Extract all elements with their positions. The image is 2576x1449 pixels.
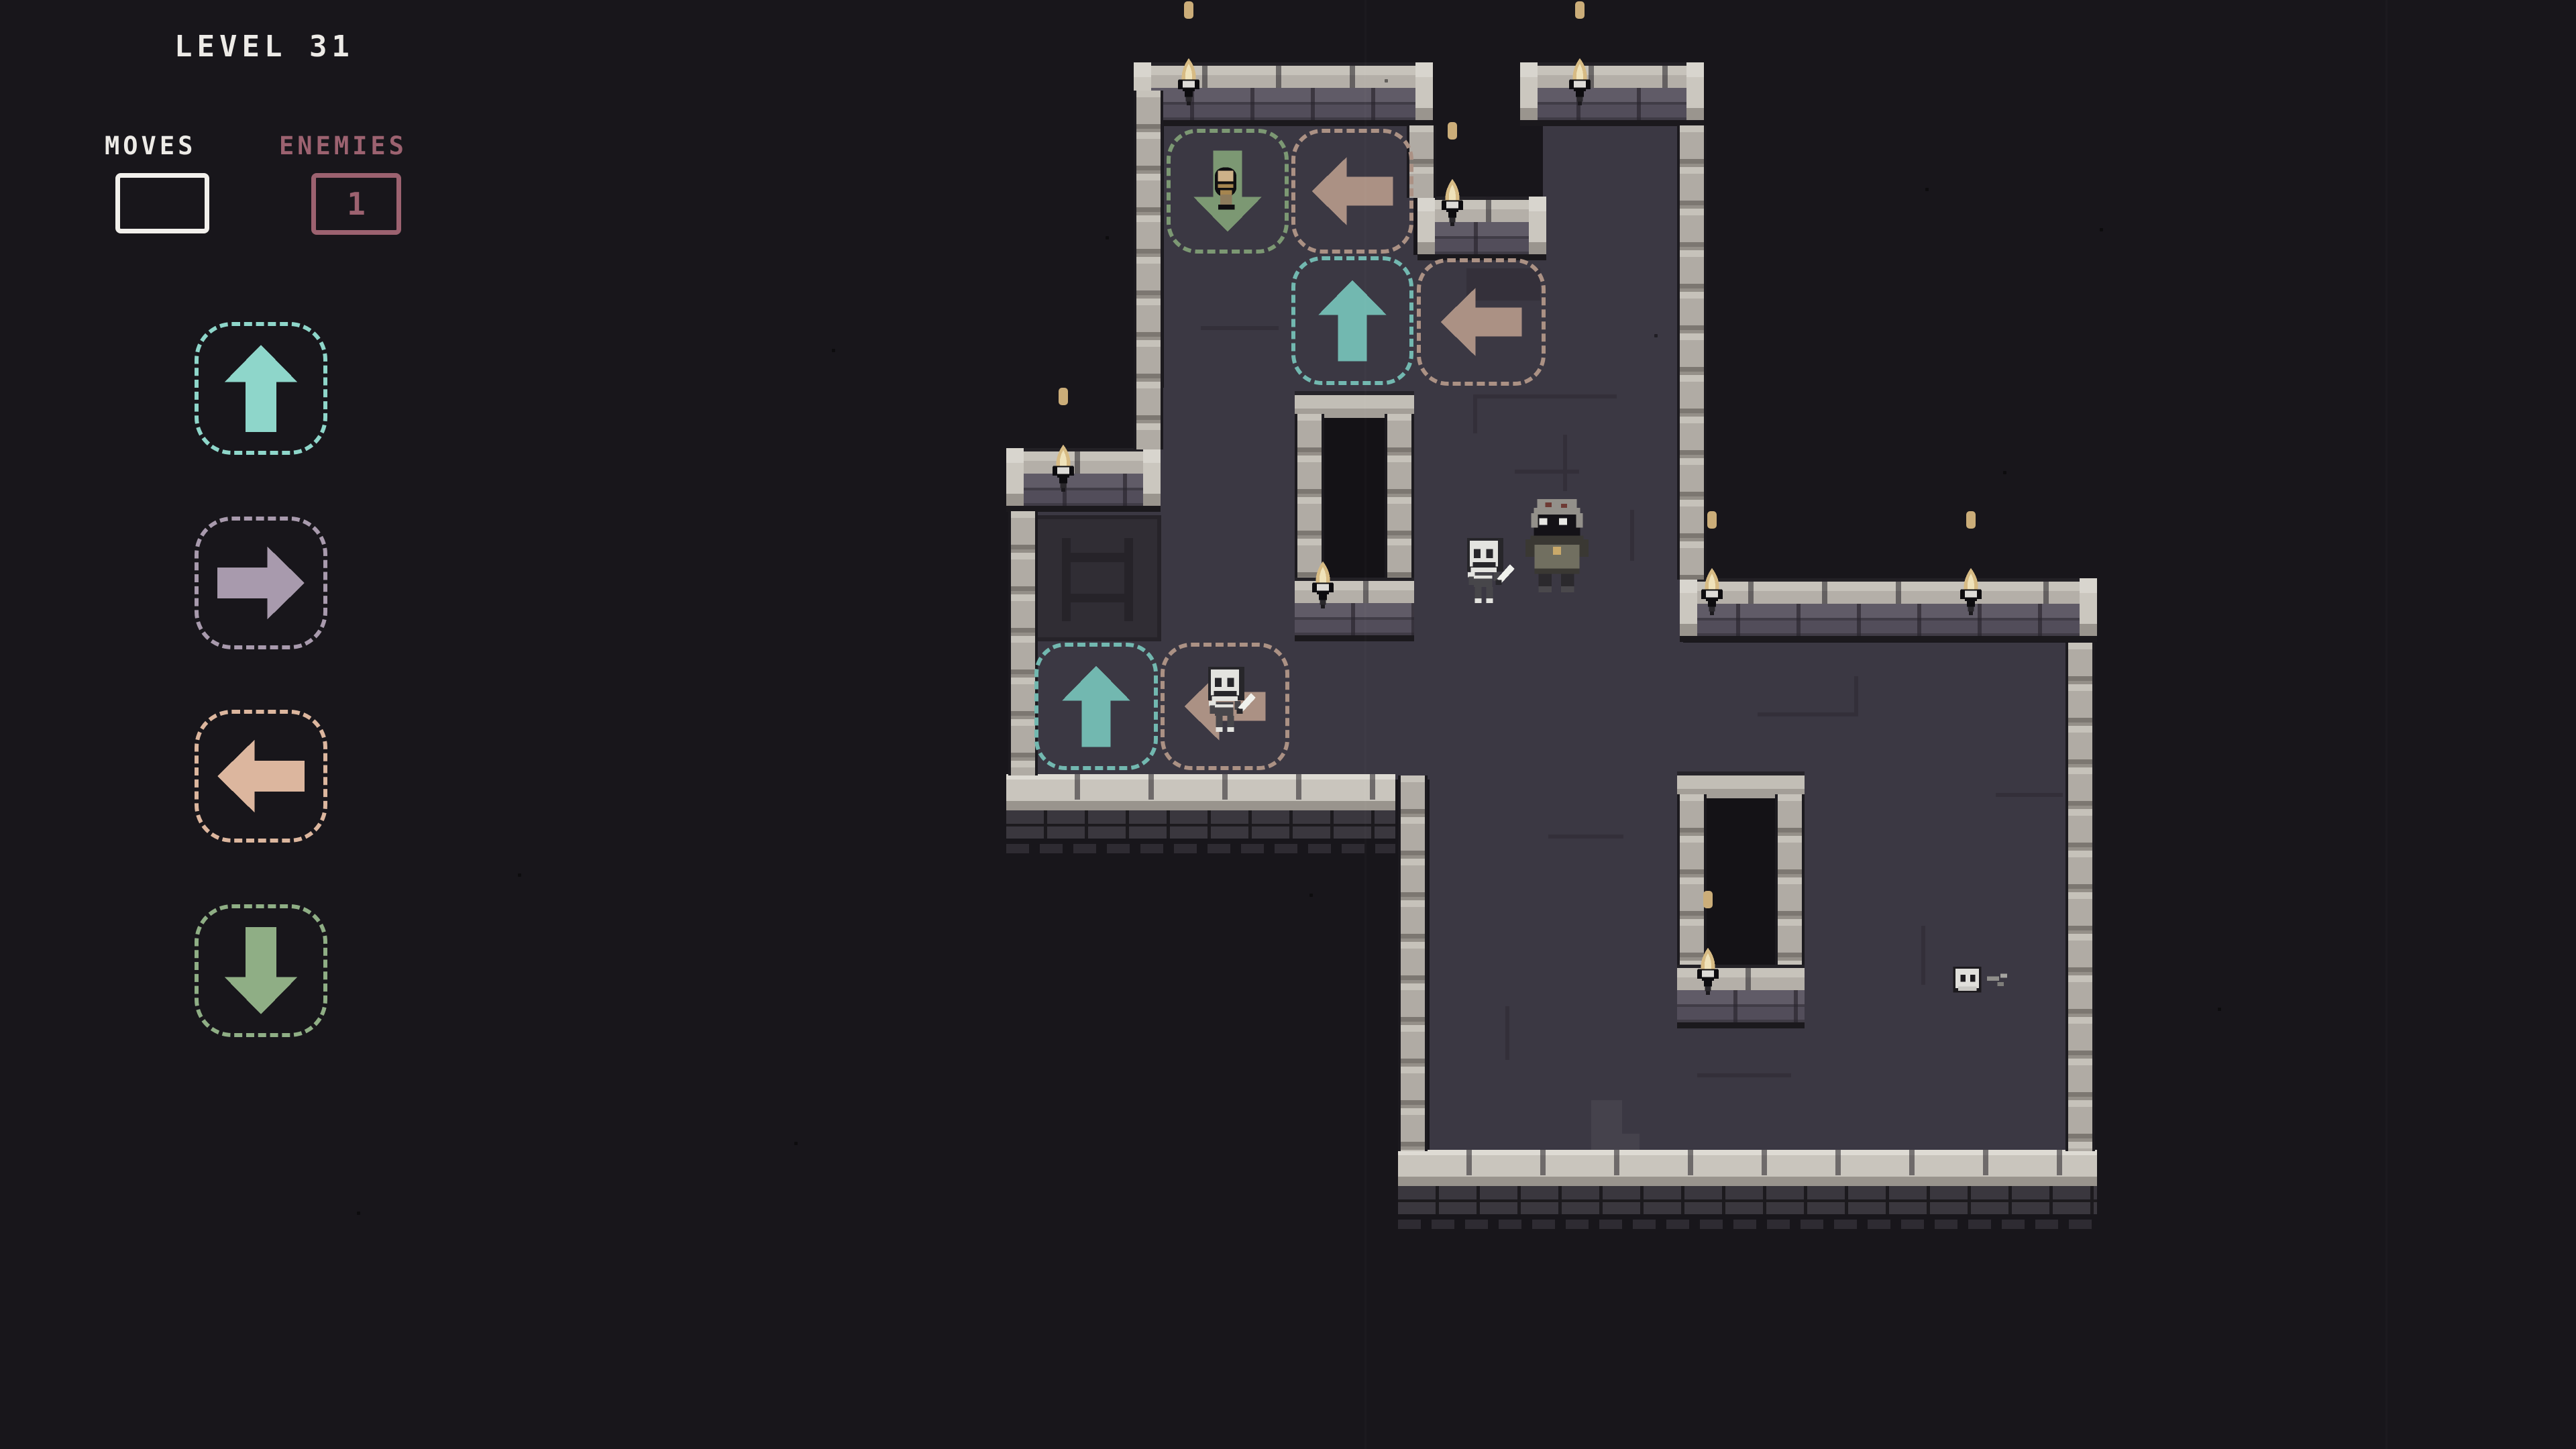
floor-speck bbox=[2100, 228, 2103, 231]
floor-crack bbox=[1630, 510, 1634, 561]
floor-crack bbox=[1515, 470, 1579, 474]
floor-speck bbox=[832, 349, 835, 352]
torch-ember bbox=[1059, 388, 1068, 405]
floor-crack bbox=[1996, 793, 2063, 797]
floor-speck bbox=[2218, 1008, 2221, 1011]
floor-crack bbox=[1563, 435, 1567, 491]
game-screen: LEVEL 31 MOVES ENEMIES 1 bbox=[0, 0, 2576, 1449]
wall bbox=[1134, 62, 1433, 126]
floor-speck bbox=[1654, 334, 1658, 337]
move-tile-down[interactable] bbox=[1167, 129, 1289, 254]
up-arrow-icon bbox=[1316, 274, 1389, 368]
floor-crack bbox=[1473, 394, 1617, 398]
torch-ember bbox=[1966, 511, 1976, 529]
down-arrow-icon bbox=[1191, 144, 1264, 238]
floor-speck bbox=[794, 1142, 798, 1145]
wall bbox=[1134, 91, 1163, 449]
floor-speck bbox=[357, 1212, 360, 1215]
wall bbox=[1398, 775, 1428, 1151]
screen-seam bbox=[2385, 0, 2387, 1449]
floor-crack bbox=[1591, 1100, 1622, 1157]
wall bbox=[1398, 1150, 2097, 1229]
up-arrow-icon bbox=[1060, 659, 1132, 753]
floor-crack bbox=[1854, 676, 1858, 716]
torch-ember bbox=[1707, 511, 1717, 529]
wall bbox=[1006, 448, 1161, 512]
move-tile-up[interactable] bbox=[1034, 643, 1158, 770]
torch-ember bbox=[1184, 1, 1193, 19]
doorway-structure bbox=[1295, 391, 1414, 643]
torch-ember bbox=[1575, 1, 1585, 19]
wall bbox=[2065, 643, 2095, 1151]
floor-crack bbox=[1697, 1073, 1791, 1077]
floor bbox=[1543, 125, 1682, 390]
floor-speck bbox=[518, 873, 521, 877]
left-arrow-icon bbox=[1305, 155, 1399, 227]
move-tile-up[interactable] bbox=[1291, 256, 1413, 385]
left-arrow-icon bbox=[1178, 670, 1272, 743]
floor-crack bbox=[1921, 926, 1925, 985]
wall bbox=[1006, 774, 1395, 853]
floor-crack bbox=[1758, 712, 1858, 716]
floor-speck bbox=[1385, 79, 1388, 83]
wall bbox=[1680, 578, 2097, 642]
wall bbox=[1677, 125, 1707, 580]
floor-crack bbox=[1505, 1006, 1509, 1060]
torch-ember bbox=[1703, 891, 1713, 908]
floor-crack bbox=[1201, 326, 1279, 330]
move-tile-left[interactable] bbox=[1161, 643, 1289, 770]
floor-speck bbox=[1309, 894, 1313, 897]
torch-ember bbox=[1448, 122, 1457, 140]
floor-speck bbox=[2003, 471, 2006, 474]
trapdoor-decoration bbox=[1034, 515, 1161, 641]
floor-crack bbox=[1548, 835, 1623, 839]
wall bbox=[1520, 62, 1704, 126]
floor-speck bbox=[1925, 188, 1929, 191]
doorway-structure bbox=[1677, 771, 1805, 1030]
left-arrow-icon bbox=[1434, 286, 1528, 358]
move-tile-left[interactable] bbox=[1291, 129, 1413, 254]
screen-seam bbox=[1364, 0, 1366, 1449]
wall bbox=[1008, 511, 1038, 775]
wall bbox=[1417, 197, 1546, 260]
move-tile-left[interactable] bbox=[1417, 258, 1546, 386]
floor-speck bbox=[1106, 236, 1109, 239]
dungeon-map bbox=[0, 0, 2576, 1449]
floor-crack bbox=[1473, 394, 1477, 433]
